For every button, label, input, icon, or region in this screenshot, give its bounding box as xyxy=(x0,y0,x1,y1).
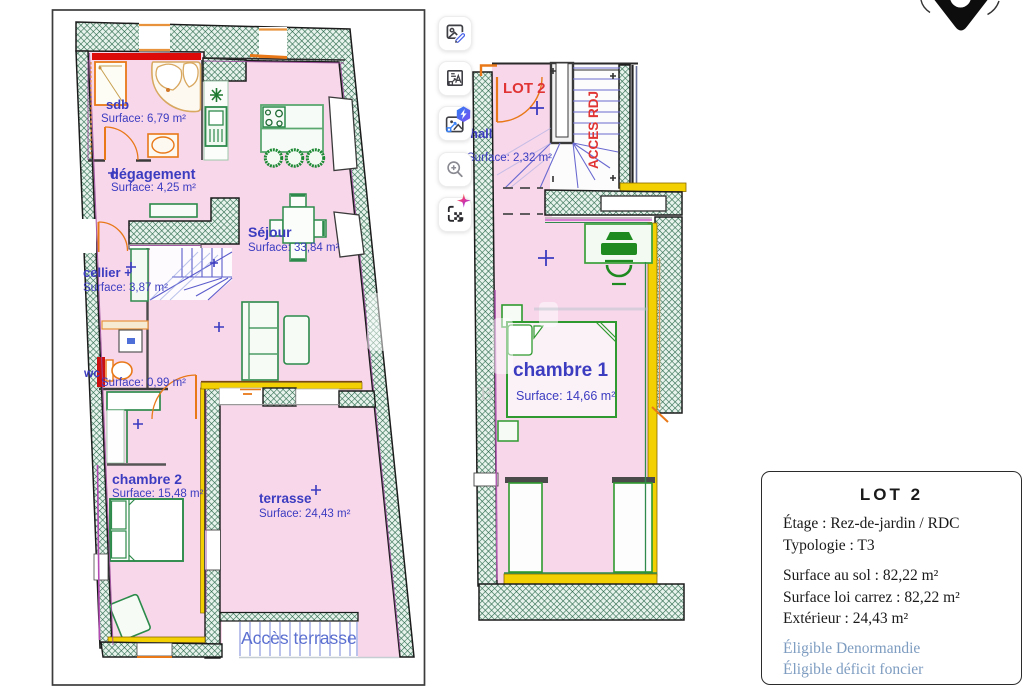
svg-text:ACCES RDJ: ACCES RDJ xyxy=(586,91,601,169)
svg-text:cellier +: cellier + xyxy=(83,265,132,280)
svg-text:Surface: 6,79 m²: Surface: 6,79 m² xyxy=(101,113,186,125)
svg-text:Surface: 3,87 m²: Surface: 3,87 m² xyxy=(83,282,168,294)
svg-text:Surface: 0,99 m²: Surface: 0,99 m² xyxy=(101,377,186,389)
svg-text:sdb: sdb xyxy=(106,97,129,112)
svg-text:chambre 1: chambre 1 xyxy=(513,360,608,381)
svg-text:Surface: 24,43 m²: Surface: 24,43 m² xyxy=(259,508,351,520)
svg-text:B: B xyxy=(480,383,493,405)
svg-text:dégagement: dégagement xyxy=(110,167,196,183)
svg-text:Surface: 14,66 m²: Surface: 14,66 m² xyxy=(516,389,615,403)
svg-text:chambre 2: chambre 2 xyxy=(112,471,182,487)
svg-text:Surface: 33,84 m²: Surface: 33,84 m² xyxy=(248,242,340,254)
svg-text:Surface: 2,32 m²: Surface: 2,32 m² xyxy=(467,152,552,164)
svg-text:LOT 2: LOT 2 xyxy=(503,80,546,97)
svg-text:Accès terrasse: Accès terrasse xyxy=(241,628,357,648)
svg-text:Surface: 15,48 m²: Surface: 15,48 m² xyxy=(112,488,204,500)
svg-text:wc: wc xyxy=(83,366,100,380)
svg-text:terrasse: terrasse xyxy=(259,491,312,506)
svg-text:hall: hall xyxy=(470,126,492,141)
svg-text:Séjour: Séjour xyxy=(248,224,292,240)
svg-text:Surface: 4,25 m²: Surface: 4,25 m² xyxy=(111,182,196,194)
